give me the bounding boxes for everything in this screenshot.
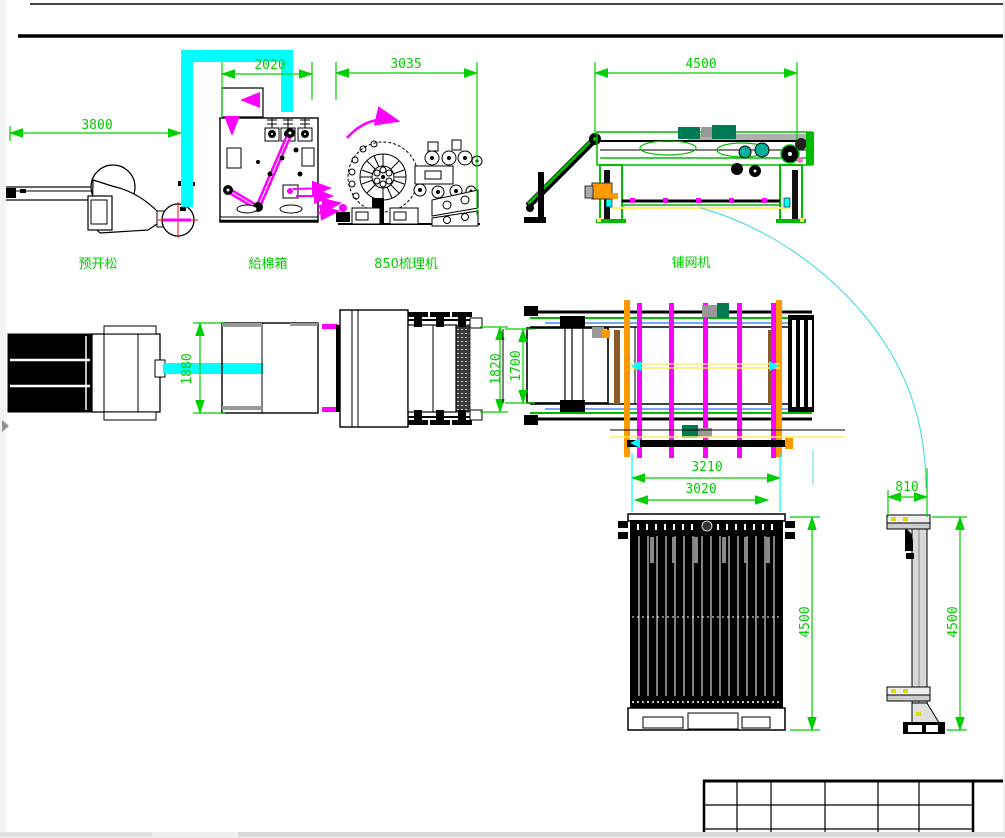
- dim-lapper-span-outer: 3210: [672, 461, 742, 475]
- label-carding-machine: 850梳理机: [356, 258, 456, 272]
- pre-opener-plan-view: [8, 326, 165, 420]
- carding-rollers: [414, 140, 482, 198]
- label-pre-opener: 预开松: [58, 258, 138, 272]
- dim-pre-opener-depth: 1880: [181, 339, 195, 399]
- sheet-border-lines: [18, 4, 1005, 36]
- suction-duct-plan: [163, 363, 263, 374]
- carding-plan-view: [322, 310, 482, 427]
- dim-curtain-depth: 810: [877, 481, 937, 495]
- cad-canvas: 3800 2020 3035 4500 1880 1820 1700 3210 …: [0, 0, 1005, 838]
- drawing-sheet: [0, 0, 1005, 838]
- lapper-plan-view: [524, 300, 845, 485]
- lapper-front-view: [524, 125, 814, 223]
- carding-machine-front-view: [318, 119, 482, 226]
- dim-carding-depth: 1820: [490, 339, 504, 399]
- dim-curtain-height-front: 4500: [799, 592, 813, 652]
- dim-lapper-depth: 1700: [510, 336, 524, 396]
- dim-lapper-length: 4500: [666, 58, 736, 72]
- dim-lapper-span-inner: 3020: [666, 483, 736, 497]
- label-lapper: 铺网机: [651, 257, 731, 271]
- title-block: [703, 780, 1005, 838]
- curtain-front-view: [618, 514, 795, 730]
- dim-feed-box-width: 2020: [235, 59, 305, 73]
- dim-curtain-height-side: 4500: [947, 592, 961, 652]
- dim-carding-length: 3035: [371, 58, 441, 72]
- feed-box-front-view: [220, 88, 332, 222]
- fan-circle: [158, 202, 198, 238]
- label-feed-box: 給棉箱: [228, 258, 308, 272]
- dim-pre-opener-length: 3800: [62, 119, 132, 133]
- curtain-side-view: [887, 515, 945, 734]
- pre-opener-front-view: [2, 165, 198, 238]
- left-panel-edge: [0, 0, 6, 838]
- h-scrollbar-segment: [0, 832, 152, 837]
- h-scrollbar-thumb[interactable]: [238, 832, 1005, 837]
